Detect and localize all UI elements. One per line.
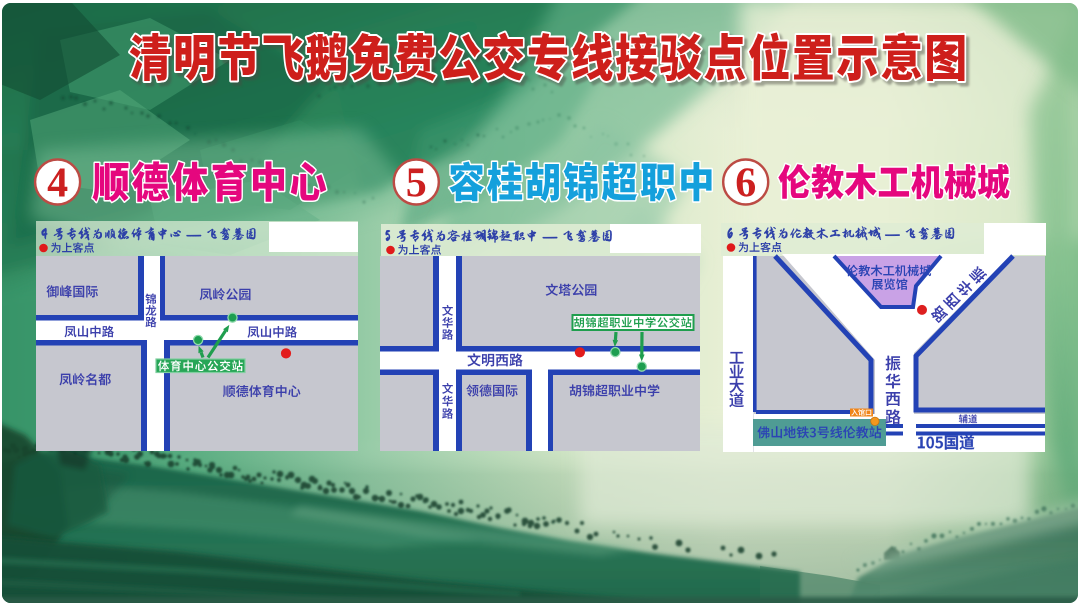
svg-text:4: 4 <box>47 161 68 207</box>
svg-text:6: 6 <box>735 161 756 207</box>
svg-text:5: 5 <box>406 161 427 207</box>
